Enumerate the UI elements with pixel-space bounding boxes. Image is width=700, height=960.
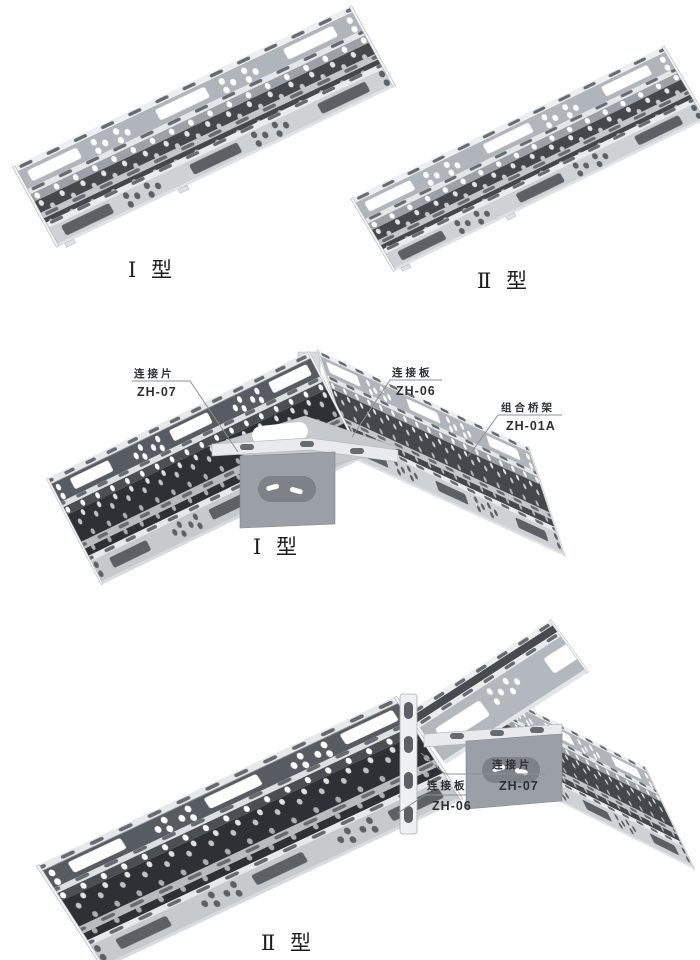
- tee-tray-assembly: [36, 620, 695, 960]
- corner-strip-slot: [530, 727, 544, 733]
- callout-elbow-tray-code: ZH-01A: [506, 419, 556, 433]
- type-label-middle: Ⅰ 型: [253, 535, 301, 559]
- straight-tray-type2: [351, 46, 700, 275]
- elbow-tray-assembly: [46, 350, 565, 585]
- catalog-page: 连接片 ZH-07 连接板 ZH-06 组合桥架 ZH-01A 连接片 ZH-0…: [0, 0, 700, 960]
- callout-tee-connector-plate-code: ZH-06: [432, 799, 472, 813]
- callout-tee-connector-piece-name: 连接片: [492, 758, 533, 771]
- callout-elbow-connector-piece-name: 连接片: [134, 367, 175, 380]
- cable-tray-diagram: 连接片 ZH-07 连接板 ZH-06 组合桥架 ZH-01A 连接片 ZH-0…: [0, 0, 700, 960]
- corner-strip-slot: [490, 730, 504, 736]
- callout-elbow-connector-plate-name: 连接板: [392, 366, 433, 379]
- connector-strip-slot: [404, 736, 413, 753]
- type-label-top-right: Ⅱ 型: [477, 269, 531, 293]
- callout-tee-connector-piece-code: ZH-07: [499, 779, 539, 793]
- type-label-bottom: Ⅱ 型: [261, 931, 315, 955]
- corner-strip-slot: [300, 441, 314, 447]
- connector-strip-slot: [404, 772, 413, 789]
- callout-tee-connector-plate-name: 连接板: [427, 779, 468, 792]
- connector-strip-slot: [404, 702, 413, 719]
- callout-elbow-connector-piece-code: ZH-07: [137, 385, 177, 399]
- callout-elbow-connector-plate-code: ZH-06: [396, 384, 436, 398]
- callout-elbow-tray-name: 组合桥架: [501, 401, 555, 414]
- corner-strip-slot: [240, 444, 254, 450]
- corner-strip-slot: [450, 733, 464, 739]
- corner-strip-slot: [350, 448, 364, 454]
- straight-tray-type1: [12, 6, 397, 251]
- type-label-top-left: Ⅰ 型: [128, 258, 176, 282]
